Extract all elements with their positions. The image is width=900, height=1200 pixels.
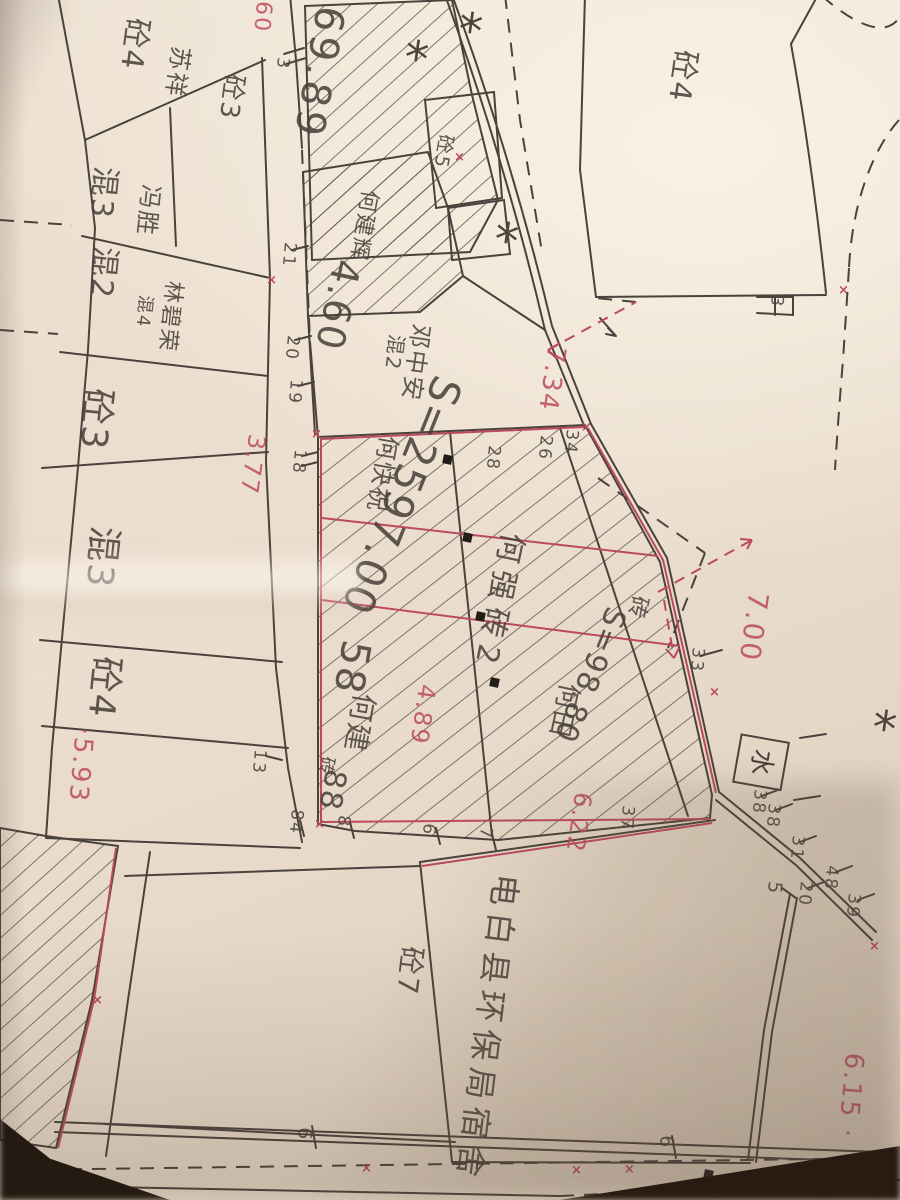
point-number-label: 34 bbox=[561, 429, 580, 456]
dimension-label: ·5.93 bbox=[64, 726, 97, 804]
point-number-label: 19 bbox=[285, 379, 304, 406]
dimension-label: 60 bbox=[249, 0, 274, 34]
building-type-label: 混2 bbox=[382, 333, 407, 372]
building-type-label: 混4 bbox=[133, 294, 154, 329]
red-cross-mark: × bbox=[624, 1162, 635, 1177]
building-type-label: 混3 bbox=[85, 165, 120, 221]
point-number-label: 6 bbox=[419, 823, 437, 837]
dimension-label: 7.00 bbox=[734, 590, 772, 664]
building-type-label: 砼4 bbox=[663, 48, 700, 105]
building-type-label: 砼4 bbox=[82, 654, 124, 720]
point-number-label: 6 bbox=[294, 1126, 314, 1142]
point-number-label: 48 bbox=[821, 865, 840, 892]
building-type-label: 混2 bbox=[85, 245, 120, 301]
survey-marker-square bbox=[442, 454, 453, 465]
owner-name-label: 苏祥 bbox=[162, 45, 193, 100]
cadastral-map-photo: 砼4苏祥砼3混3冯胜混2林碧荣混4砼3混3砼4砼4砼5何建辉邓中安混2何快祝何强… bbox=[0, 0, 900, 1200]
point-number-label: 28 bbox=[483, 445, 502, 472]
point-number-label: 3 bbox=[273, 57, 291, 71]
building-type-label: 混3 bbox=[80, 524, 122, 590]
red-cross-mark: × bbox=[361, 1161, 372, 1176]
point-number-label: 13 bbox=[249, 749, 268, 776]
survey-marker-square bbox=[462, 532, 473, 543]
red-cross-mark: × bbox=[709, 685, 720, 700]
red-cross-mark: × bbox=[838, 283, 849, 298]
building-type-label: 砼3 bbox=[74, 386, 116, 452]
red-cross-mark: × bbox=[454, 150, 465, 165]
red-cross-mark: × bbox=[92, 993, 103, 1008]
water-meter-symbol: 水 bbox=[732, 733, 790, 791]
point-number-label: 6 bbox=[656, 1134, 676, 1150]
owner-name-label: 林碧荣 bbox=[155, 280, 184, 354]
survey-marker-square bbox=[489, 677, 500, 688]
point-number-label: 20 bbox=[282, 335, 301, 362]
red-cross-mark: × bbox=[311, 427, 322, 442]
point-number-label: 7 bbox=[476, 827, 494, 841]
point-number-label: 20 bbox=[795, 881, 814, 908]
building-type-label: 砼3 bbox=[215, 72, 247, 122]
survey-marker-square bbox=[703, 1169, 714, 1180]
point-number-label: 84 bbox=[286, 809, 305, 836]
survey-marker-square bbox=[475, 611, 486, 622]
red-cross-mark: × bbox=[266, 273, 277, 288]
building-type-label: 砼7 bbox=[392, 945, 426, 998]
point-number-label: 21 bbox=[279, 242, 298, 269]
point-number-label: 31 bbox=[787, 835, 806, 862]
red-cross-mark: × bbox=[581, 420, 592, 435]
red-cross-mark: × bbox=[869, 939, 880, 954]
point-number-label: 18 bbox=[289, 449, 308, 476]
point-number-label: 33 bbox=[687, 647, 706, 674]
area-label: 58 bbox=[327, 637, 376, 698]
dimension-label: 6.15 · bbox=[834, 1052, 867, 1140]
building-type-label: 砼4 bbox=[115, 16, 152, 73]
point-number-label: 37 bbox=[617, 805, 636, 832]
area-label: 88 bbox=[313, 767, 350, 814]
point-number-label: 8 bbox=[334, 815, 352, 829]
point-number-label: 38 bbox=[763, 803, 782, 830]
red-cross-mark: × bbox=[314, 817, 325, 832]
red-cross-mark: × bbox=[571, 1163, 582, 1178]
point-number-label: 5 bbox=[764, 880, 784, 896]
point-number-label: 3 bbox=[767, 295, 785, 309]
owner-name-label: 何建 bbox=[340, 691, 378, 755]
point-number-label: 26 bbox=[535, 435, 554, 462]
owner-name-label: 冯胜 bbox=[134, 183, 163, 237]
building-type-label: 砼5 bbox=[430, 133, 455, 171]
point-number-label: 39 bbox=[843, 893, 862, 920]
